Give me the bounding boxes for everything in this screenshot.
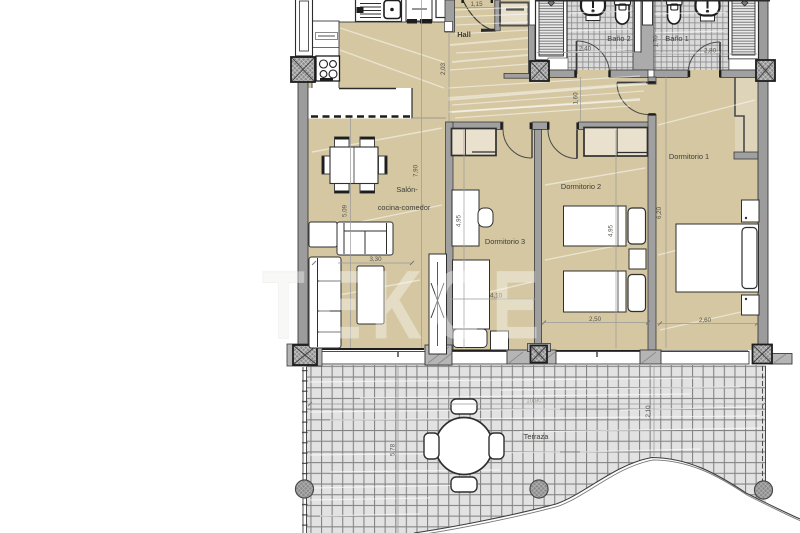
svg-text:2,40: 2,40: [579, 46, 592, 53]
svg-text:Dormitorio 3: Dormitorio 3: [485, 237, 525, 246]
svg-text:2,50: 2,50: [589, 316, 602, 323]
svg-text:cocina-comedor: cocina-comedor: [378, 203, 431, 212]
svg-text:Salón-: Salón-: [396, 185, 418, 194]
svg-text:1,60: 1,60: [573, 92, 580, 105]
svg-text:Baño 2: Baño 2: [607, 34, 630, 43]
svg-text:1,70: 1,70: [653, 35, 660, 48]
svg-text:1,15: 1,15: [470, 1, 483, 8]
svg-text:2,10: 2,10: [645, 405, 652, 418]
svg-text:7,90: 7,90: [413, 164, 420, 177]
svg-text:5,78: 5,78: [390, 443, 397, 456]
svg-text:TEKCE: TEKCE: [262, 250, 549, 359]
svg-text:6,20: 6,20: [656, 206, 663, 219]
svg-text:2,60: 2,60: [699, 317, 712, 324]
svg-text:Baño 1: Baño 1: [665, 34, 688, 43]
svg-text:5,09: 5,09: [342, 204, 349, 217]
svg-text:Dormitorio 1: Dormitorio 1: [669, 152, 709, 161]
svg-text:4,95: 4,95: [608, 224, 615, 237]
svg-text:4,95: 4,95: [456, 214, 463, 227]
svg-text:10,80: 10,80: [526, 398, 542, 405]
svg-text:2,80: 2,80: [704, 48, 717, 55]
svg-text:Dormitorio 2: Dormitorio 2: [561, 182, 601, 191]
svg-text:Terraza: Terraza: [524, 432, 550, 441]
svg-text:Hall: Hall: [457, 30, 471, 39]
svg-text:2,03: 2,03: [440, 62, 447, 75]
